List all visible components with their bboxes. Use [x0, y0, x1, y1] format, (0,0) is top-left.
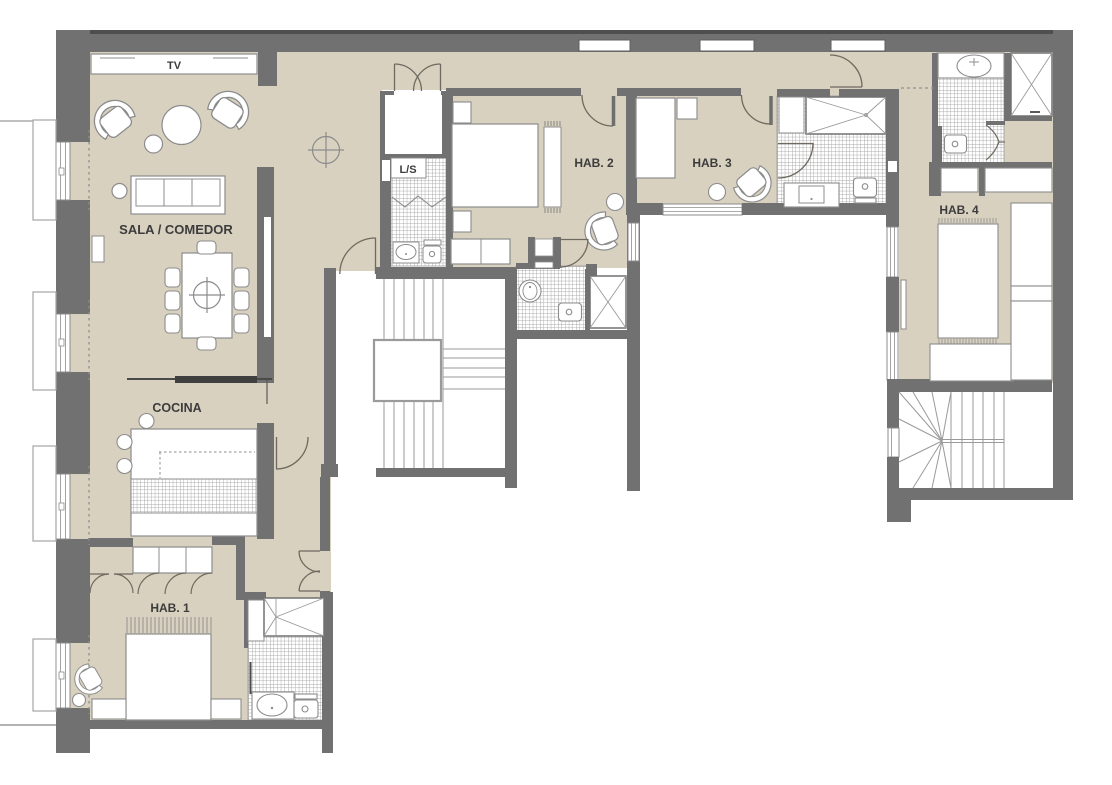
svg-text:HAB. 2: HAB. 2 — [574, 156, 614, 170]
svg-text:HAB. 4: HAB. 4 — [939, 203, 979, 217]
svg-text:L/S: L/S — [399, 164, 416, 176]
svg-text:HAB. 1: HAB. 1 — [150, 601, 190, 615]
svg-text:TV: TV — [167, 60, 182, 72]
svg-text:SALA / COMEDOR: SALA / COMEDOR — [119, 222, 233, 237]
svg-text:HAB. 3: HAB. 3 — [692, 156, 732, 170]
svg-text:COCINA: COCINA — [152, 401, 201, 415]
